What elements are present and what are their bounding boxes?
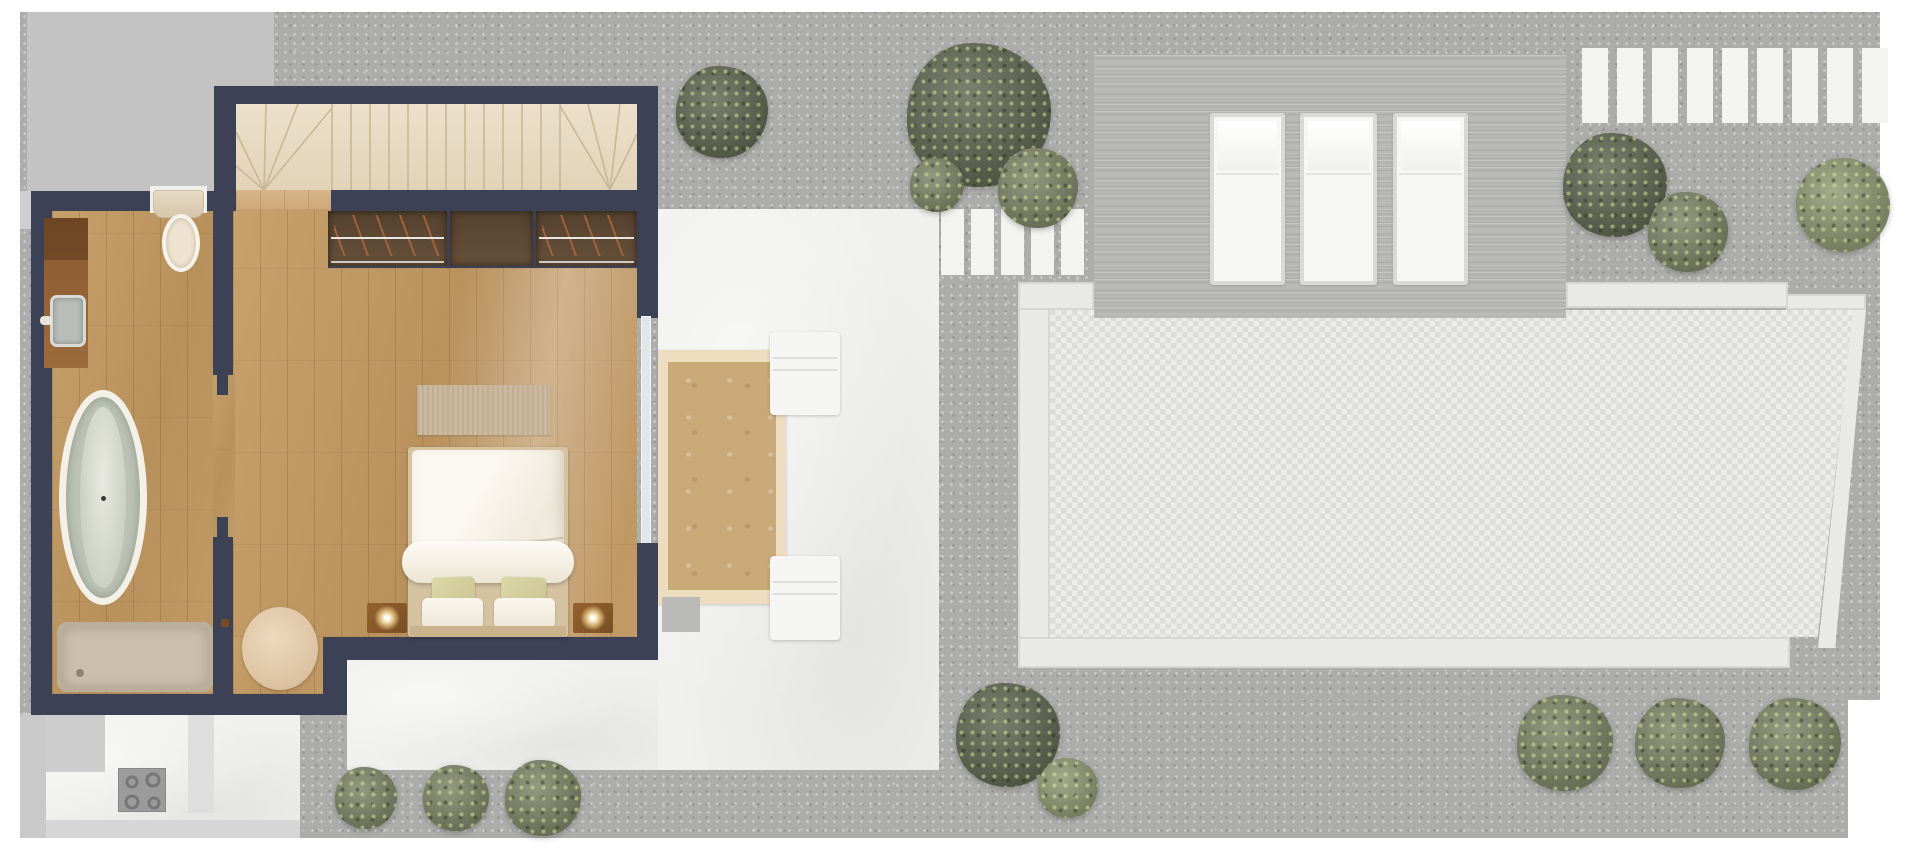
- nightstand-left: [367, 603, 407, 633]
- pool-border-top-corner: [1018, 282, 1094, 310]
- lamp-glow: [374, 605, 400, 631]
- floor-plan-canvas: [0, 0, 1920, 867]
- bush-bottom-right-3: [1749, 698, 1841, 790]
- lounge-chair-south: [770, 556, 840, 640]
- timber-deck: [1094, 55, 1566, 318]
- bush-top-center-right: [998, 148, 1078, 228]
- left-edge-sliver: [20, 715, 46, 838]
- vanity-basin: [50, 295, 86, 347]
- bush-bottom-right-1: [1517, 695, 1613, 791]
- white-pillow-left: [422, 598, 483, 629]
- kitchen-counter-strip: [188, 713, 214, 813]
- wall-east-upper: [637, 86, 658, 318]
- wall-north-bath-right: [205, 191, 236, 211]
- bush-right-of-deck-small: [1648, 192, 1728, 272]
- headboard: [410, 626, 566, 637]
- lounge-chair-north: [770, 332, 840, 415]
- nightstand-right: [573, 603, 613, 633]
- pool-ledge-east: [1566, 282, 1788, 308]
- cooktop: [118, 768, 166, 812]
- wall-south-bedroom: [332, 637, 658, 660]
- round-bush-far-right: [1796, 158, 1890, 252]
- staircase-floor: [236, 104, 637, 190]
- pool-ledge-east-offset: [1786, 294, 1866, 310]
- door-mat: [662, 597, 700, 632]
- wall-divider-lower: [213, 537, 233, 694]
- wall-north-stair: [214, 86, 658, 104]
- lounge-platform-inner: [668, 362, 776, 590]
- wall-under-stairs: [331, 190, 637, 211]
- sliding-door-glass: [641, 316, 651, 545]
- bed-throw-roll: [402, 541, 574, 583]
- bathtub: [59, 390, 147, 605]
- sun-lounger-3: [1393, 113, 1468, 285]
- wall-west-stair: [214, 86, 236, 191]
- bush-bottom-right-2: [1635, 698, 1725, 788]
- sun-lounger-2: [1300, 113, 1377, 285]
- round-rug: [242, 607, 318, 690]
- bush-bottom-center-small: [1038, 758, 1098, 818]
- pool-border-bottom: [1018, 637, 1790, 668]
- wardrobe-hanging-section-left: [328, 211, 447, 266]
- white-pillow-right: [494, 598, 555, 629]
- wall-divider-upper: [213, 209, 233, 375]
- bush-bottom-left-2: [423, 765, 489, 831]
- terrace-south: [347, 660, 658, 770]
- stair-treads: [236, 104, 637, 190]
- toilet-bowl: [162, 214, 200, 272]
- wall-south-bath: [31, 694, 347, 715]
- kitchen-lower-band: [22, 820, 300, 838]
- wall-divider-stub-upper: [217, 375, 228, 395]
- pool-mosaic-water: [1050, 310, 1853, 637]
- bed-foot-rug: [417, 385, 550, 435]
- bush-bottom-left-3: [505, 760, 581, 836]
- wardrobe-hanging-section-right: [536, 211, 637, 266]
- wall-divider-stub-lower: [217, 517, 228, 537]
- sun-lounger-1: [1210, 113, 1285, 285]
- hall-landing-floor: [236, 190, 331, 210]
- wardrobe-shelf-section: [450, 211, 533, 266]
- wardrobe: [328, 211, 637, 268]
- pool-border-left: [1018, 282, 1050, 668]
- tree-top-left: [676, 66, 768, 158]
- wall-tap: [40, 316, 52, 325]
- bed: [408, 447, 568, 637]
- garden-steps: [1582, 48, 1897, 123]
- shower-tray: [57, 622, 213, 692]
- bush-top-center-small: [910, 158, 964, 212]
- bush-bottom-left-1: [335, 767, 397, 829]
- bath-door-hinge: [221, 619, 229, 627]
- lamp-glow: [580, 605, 606, 631]
